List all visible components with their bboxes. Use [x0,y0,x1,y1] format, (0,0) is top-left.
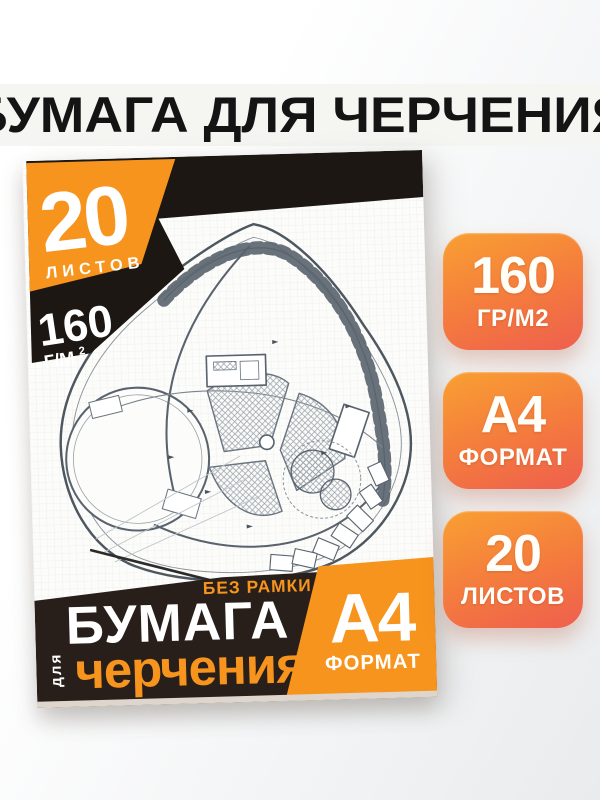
cover-format-value: А4 [328,577,417,657]
badge-sheets-value: 20 [485,528,541,581]
badge-format-label: ФОРМАТ [459,444,568,472]
cover-word-drafting: черчения [74,636,305,699]
product-title-strip: БУМАГА ДЛЯ ЧЕРЧЕНИЯ [0,84,600,146]
sheets-count: 20 [35,167,133,270]
badge-sheets-label: ЛИСТОВ [461,583,565,611]
cover-artwork: 20 ЛИСТОВ 160 Г/М 2 БЕЗ РАМКИ БУМАГА для… [22,150,437,708]
cover-word-for: для [47,652,65,687]
badge-density-value: 160 [471,250,555,303]
feature-badge-sheets: 20 ЛИСТОВ [443,511,583,628]
product-title: БУМАГА ДЛЯ ЧЕРЧЕНИЯ [0,90,600,140]
paper-pad-cover: 20 ЛИСТОВ 160 Г/М 2 БЕЗ РАМКИ БУМАГА для… [22,150,437,708]
feature-badge-density: 160 ГР/М2 [443,233,583,350]
feature-badge-format: А4 ФОРМАТ [443,372,583,489]
cover-format-word: ФОРМАТ [325,651,421,676]
badge-format-value: А4 [481,389,545,442]
badge-density-label: ГР/М2 [477,305,549,333]
